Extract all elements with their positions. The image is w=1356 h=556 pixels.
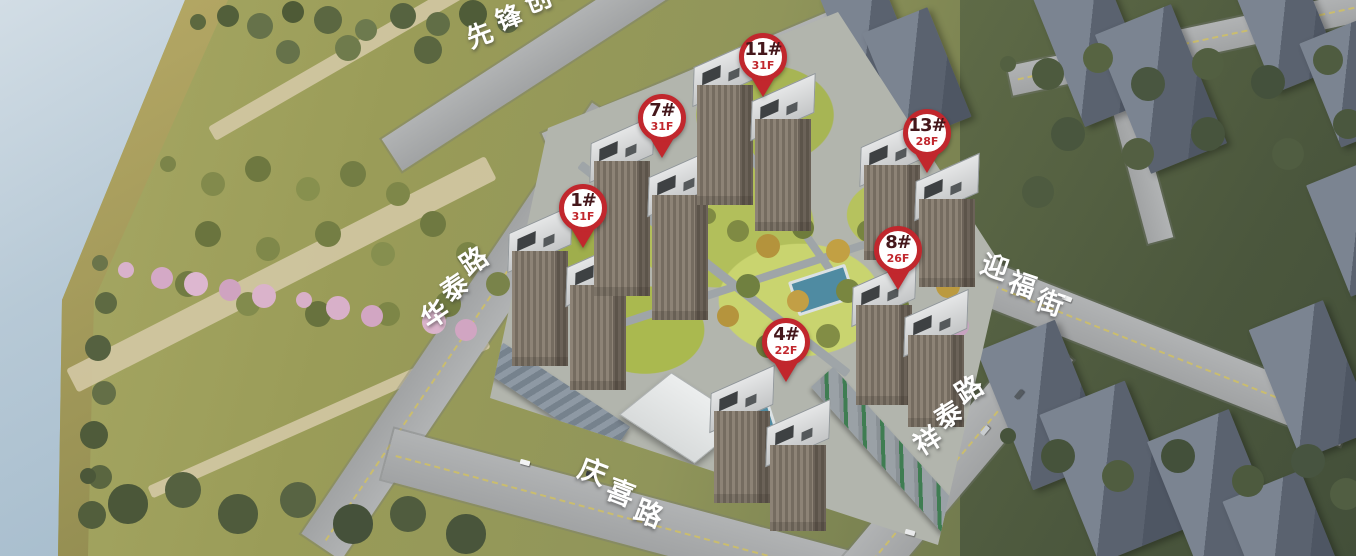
tower-building-4b [770,430,826,531]
building-marker-4[interactable]: 4# 22F [762,318,810,382]
marker-number: 8# [885,234,911,252]
swimming-pool [788,264,856,317]
tower-facade [770,445,826,531]
tree-cluster [92,255,108,271]
marker-number: 4# [773,326,799,344]
tower-building-13b [919,184,975,287]
building-marker-7[interactable]: 7# 31F [638,94,686,158]
tree-cluster [80,468,96,484]
building-marker-8[interactable]: 8# 26F [874,226,922,290]
tower-facade [919,199,975,287]
tower-building-11b [755,104,811,231]
tree-cluster [190,14,206,30]
tree-cluster [160,156,176,172]
building-marker-11[interactable]: 11# 31F [739,33,787,97]
marker-head: 4# 22F [762,318,810,366]
road-label-char: 先 [460,12,498,56]
marker-head: 1# 31F [559,184,607,232]
marker-head: 7# 31F [638,94,686,142]
river-water [0,0,260,556]
tower-facade [697,85,753,205]
marker-floors: 26F [887,252,910,265]
tower-facade [755,119,811,231]
marker-number: 11# [744,41,781,59]
tower-facade [570,285,626,390]
tower-building-4a [714,396,770,503]
building-marker-13[interactable]: 13# 28F [903,109,951,173]
tree-cluster [1000,428,1016,444]
road-label-char: 意 [548,0,586,3]
marker-number: 7# [649,102,675,120]
road-label-char: 锋 [490,0,528,38]
marker-floors: 22F [775,344,798,357]
marker-head: 8# 26F [874,226,922,274]
marker-floors: 31F [752,59,775,72]
aerial-site-map: 先 锋 创 意 华 泰 路 庆 喜 路 祥 泰 路 迎 福 街 1# 31F 4… [0,0,1356,556]
tower-facade [512,251,568,366]
marker-head: 11# 31F [739,33,787,81]
marker-floors: 28F [916,135,939,148]
tower-facade [714,411,770,503]
marker-head: 13# 28F [903,109,951,157]
marker-number: 1# [570,192,596,210]
marker-floors: 31F [651,120,674,133]
tower-building-1a [512,236,568,366]
road-label-char: 创 [519,0,557,21]
tree-cluster [1000,56,1016,72]
tower-facade [652,195,708,320]
blossom-tree-row [118,262,134,278]
building-marker-1[interactable]: 1# 31F [559,184,607,248]
blossom-tree-row [296,292,312,308]
marker-number: 13# [908,117,945,135]
marker-floors: 31F [572,210,595,223]
